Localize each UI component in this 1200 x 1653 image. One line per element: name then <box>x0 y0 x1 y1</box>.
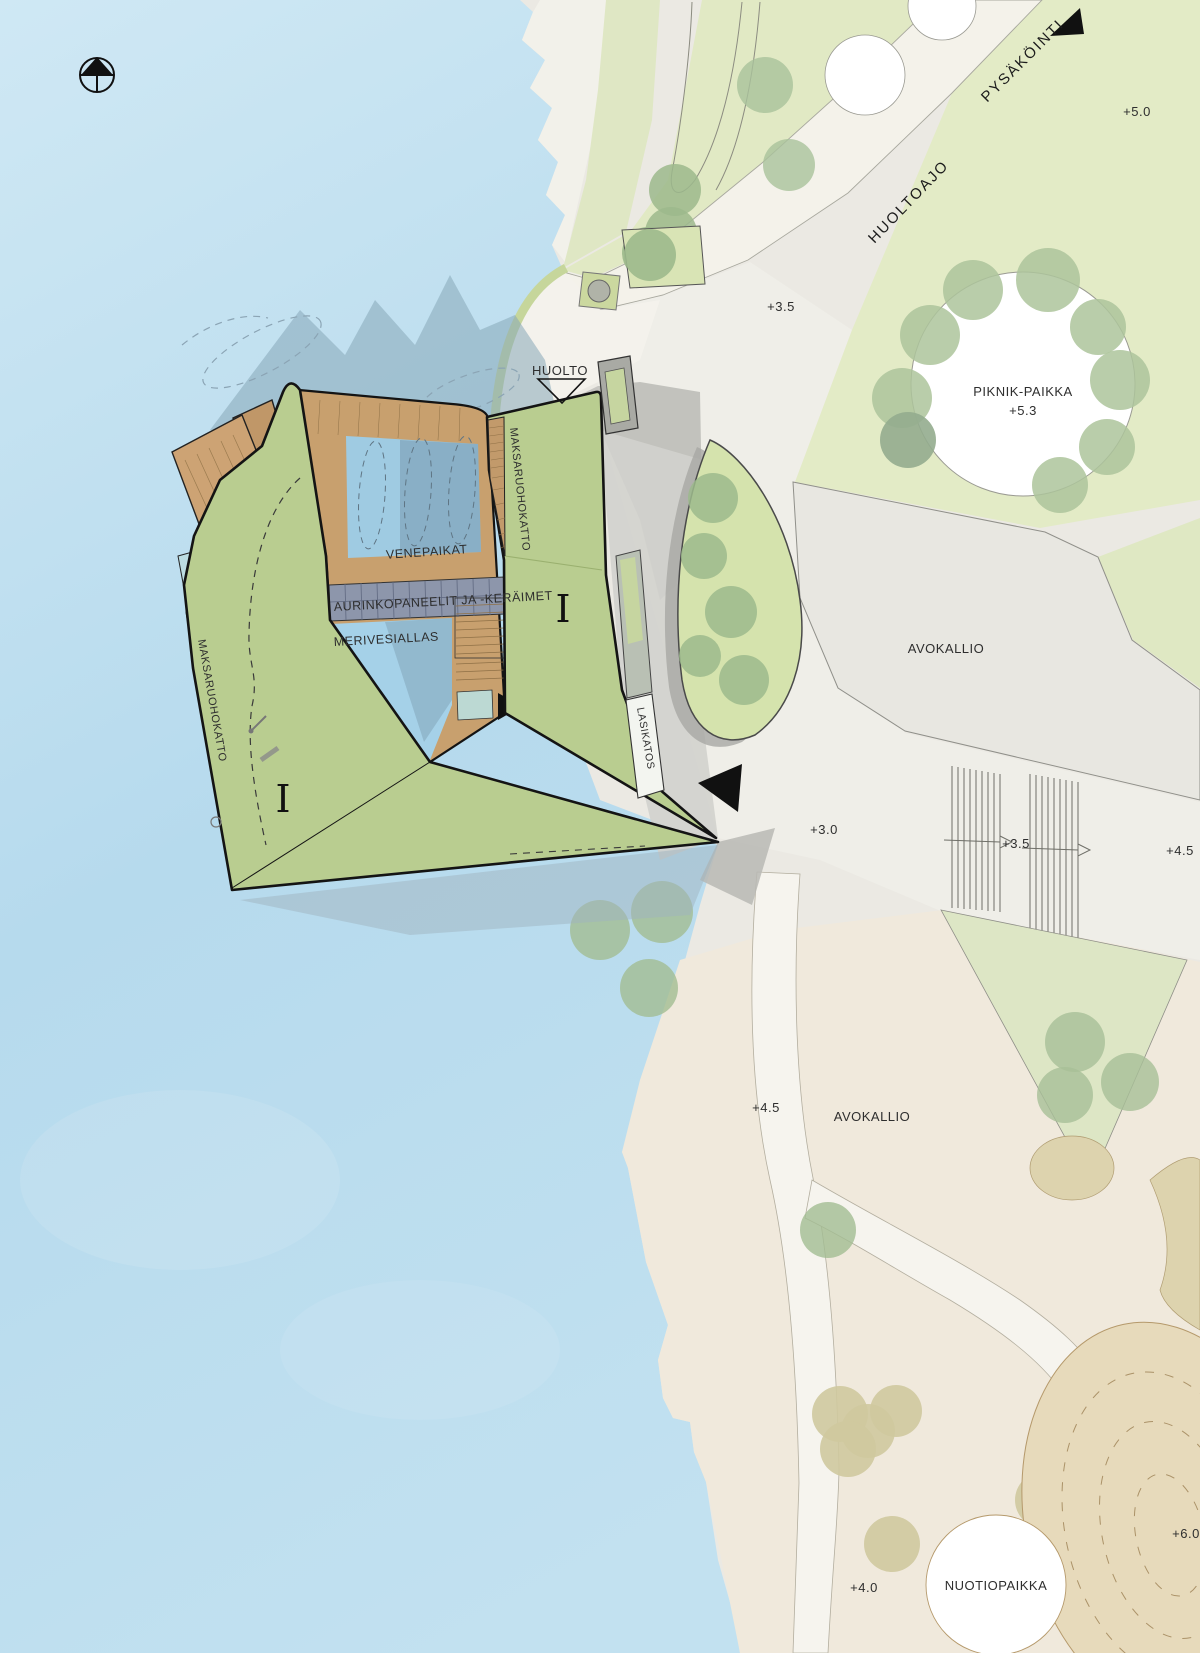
label-elev-35-stairs: +3.5 <box>1002 836 1030 851</box>
label-picnic-place: PIKNIK-PAIKKA <box>973 384 1072 399</box>
label-elev-45-stairs: +4.5 <box>1166 843 1194 858</box>
label-elev-60: +6.0 <box>1172 1526 1200 1541</box>
site-plan-drawing: PYSÄKÖINTI HUOLTOAJO +5.0 +3.5 PIKNIK-PA… <box>0 0 1200 1653</box>
label-elev-53: +5.3 <box>1009 403 1037 418</box>
label-campfire-place: NUOTIOPAIKKA <box>945 1578 1048 1593</box>
label-elev-45-path: +4.5 <box>752 1100 780 1115</box>
water-highlight <box>280 1280 560 1420</box>
label-service: HUOLTO <box>532 363 588 378</box>
entry-green-parcel <box>622 226 705 288</box>
water-highlight <box>20 1090 340 1270</box>
label-open-rock-lower: AVOKALLIO <box>834 1109 911 1124</box>
label-open-rock-upper: AVOKALLIO <box>908 641 985 656</box>
marina-basin-shadow <box>400 440 481 555</box>
rock-blob <box>1030 1136 1114 1200</box>
road-planter <box>579 272 620 310</box>
deck-glass-square <box>457 690 493 720</box>
label-elev-35-upper: +3.5 <box>767 299 795 314</box>
label-elev-40: +4.0 <box>850 1580 878 1595</box>
label-floor-one-right: I <box>555 587 570 631</box>
label-elev-30: +3.0 <box>810 822 838 837</box>
label-floor-one-left: I <box>275 777 290 821</box>
site-plan-canvas: PYSÄKÖINTI HUOLTOAJO +5.0 +3.5 PIKNIK-PA… <box>0 0 1200 1653</box>
north-arrow-icon <box>80 57 114 92</box>
label-elev-50: +5.0 <box>1123 104 1151 119</box>
